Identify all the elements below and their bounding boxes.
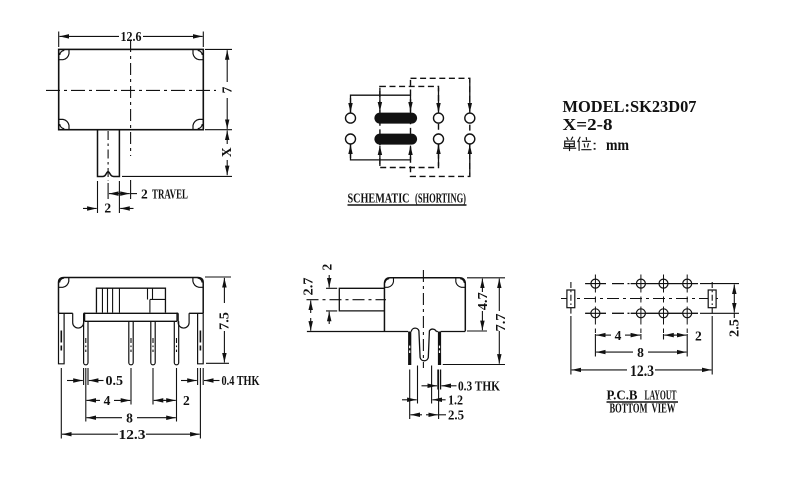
svg-text:8: 8 <box>126 410 133 425</box>
svg-text:4: 4 <box>104 393 111 408</box>
svg-text:2: 2 <box>695 328 702 343</box>
svg-text:2.5: 2.5 <box>448 408 464 423</box>
svg-text:X: X <box>219 147 234 157</box>
svg-text:SCHEMATIC: SCHEMATIC <box>348 191 410 206</box>
svg-text:0.3 THK: 0.3 THK <box>458 379 500 394</box>
svg-text:2: 2 <box>141 186 148 201</box>
svg-text:4: 4 <box>615 328 622 343</box>
svg-text:(SHORTING): (SHORTING) <box>415 191 466 206</box>
svg-text:2: 2 <box>320 264 335 271</box>
svg-text:0.5: 0.5 <box>106 373 124 388</box>
svg-text:7.7: 7.7 <box>493 313 508 331</box>
svg-text:mm: mm <box>606 137 629 154</box>
svg-text:12.3: 12.3 <box>630 363 654 380</box>
svg-text:MODEL:SK23D07: MODEL:SK23D07 <box>563 97 697 116</box>
svg-text:12.3: 12.3 <box>119 427 146 442</box>
svg-text:7.5: 7.5 <box>217 312 232 330</box>
svg-text:7: 7 <box>220 86 235 93</box>
svg-text:2.5: 2.5 <box>727 319 742 337</box>
svg-text:2: 2 <box>104 201 111 216</box>
svg-text:8: 8 <box>637 345 644 360</box>
svg-text:12.6: 12.6 <box>121 29 142 44</box>
svg-text:4.7: 4.7 <box>475 292 490 310</box>
svg-text:1.2: 1.2 <box>448 393 463 408</box>
svg-text:X=2-8: X=2-8 <box>563 115 613 134</box>
svg-text:2: 2 <box>183 393 190 408</box>
svg-text:2.7: 2.7 <box>301 277 316 295</box>
svg-text:0.4 THK: 0.4 THK <box>222 373 260 388</box>
svg-text:VIEW: VIEW <box>652 401 676 416</box>
svg-text:BOTTOM: BOTTOM <box>610 401 648 416</box>
svg-text:TRAVEL: TRAVEL <box>152 186 188 201</box>
